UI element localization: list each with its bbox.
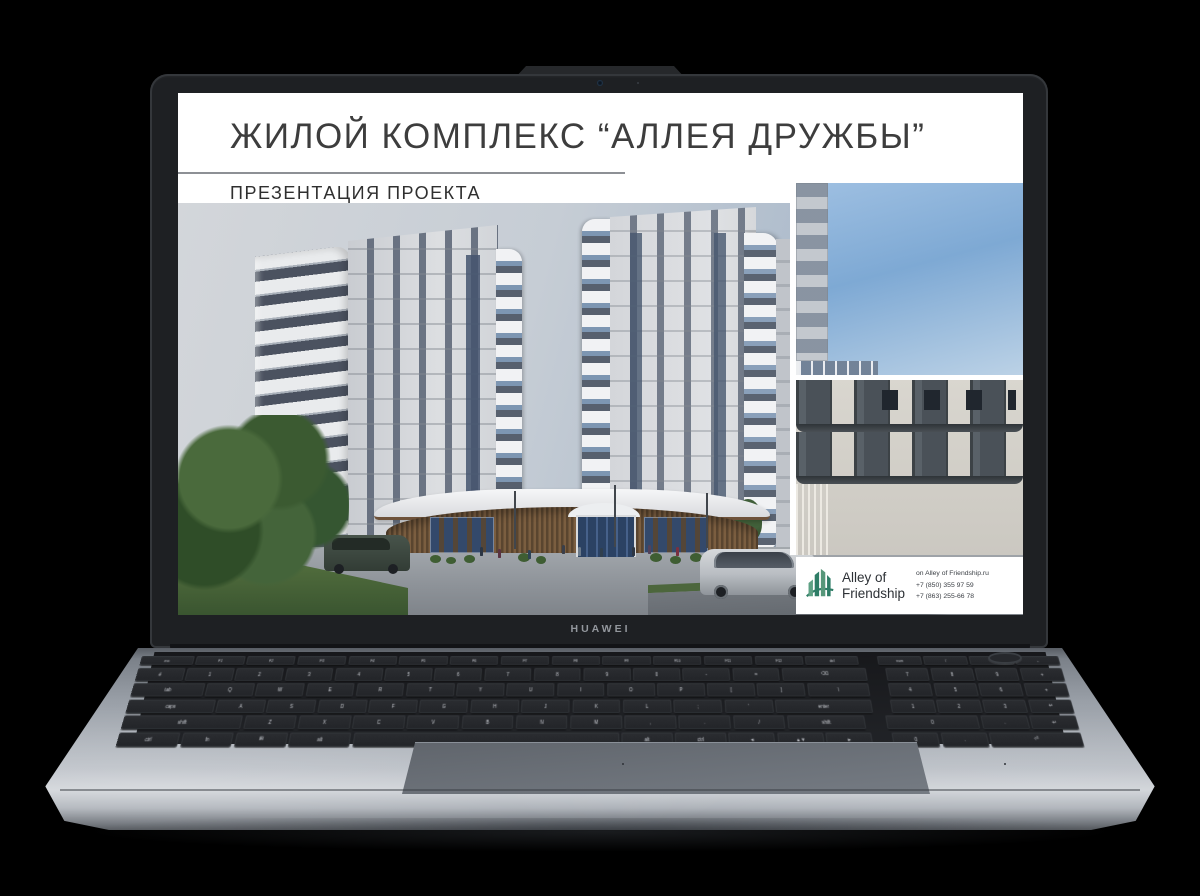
microphone-dot: [622, 763, 624, 765]
key-s: S: [266, 699, 317, 713]
key-f: F: [368, 699, 418, 713]
key-caps: caps: [125, 699, 215, 713]
key-1: 1: [185, 668, 235, 681]
entrance-door: [576, 515, 636, 557]
key-0: 0: [885, 715, 981, 729]
slide-title: ЖИЛОЙ КОМПЛЕКС “АЛЛЕЯ ДРУЖБЫ”: [230, 117, 925, 157]
pedestrian: [498, 549, 501, 558]
key-9: 9: [583, 668, 630, 681]
key-f10: F10: [653, 656, 702, 665]
keyboard-row: tabQWERTYUIOP[]\456+: [130, 683, 1070, 696]
wheel: [388, 564, 398, 574]
pedestrian: [528, 550, 531, 559]
street-lamp: [614, 485, 616, 547]
keyboard-gap: [868, 668, 884, 681]
alley-of-friendship-logo-icon: [805, 566, 835, 605]
facade-detail-photo: [790, 380, 1023, 555]
key-sym: +: [1023, 683, 1070, 696]
key-u: U: [506, 683, 554, 696]
key-sym: ⊞: [234, 732, 288, 746]
key-q: Q: [204, 683, 255, 696]
key-x: X: [297, 715, 351, 729]
contact-block: on Alley of Friendship.ru +7 (850) 355 9…: [916, 568, 1014, 603]
balcony-detail-photo: [790, 183, 1023, 380]
balcony-rail: [796, 424, 1023, 432]
logo-line2: Friendship: [842, 586, 905, 601]
balcony-rail: [796, 476, 1023, 484]
logo-card: Alley of Friendship on Alley of Friendsh…: [796, 557, 1023, 614]
key-tab: tab: [130, 683, 205, 696]
entrance-glazing: [430, 517, 494, 553]
key-w: W: [255, 683, 305, 696]
key-z: Z: [243, 715, 298, 729]
key-sym: =: [732, 668, 780, 681]
key-6: 6: [978, 683, 1024, 696]
large-tree: [178, 415, 349, 615]
key-ё: ё: [135, 668, 186, 681]
key-sym: ': [724, 699, 773, 713]
key-d: D: [317, 699, 367, 713]
key-sym: [: [707, 683, 756, 696]
key-3: 3: [982, 699, 1029, 713]
key-h: H: [470, 699, 519, 713]
key-l: L: [623, 699, 672, 713]
key-f12: F12: [754, 656, 803, 665]
key-f2: F2: [246, 656, 296, 665]
key-7: 7: [885, 668, 930, 681]
key-enter: enter: [775, 699, 873, 713]
key-sym: ↵: [1029, 715, 1079, 729]
keyboard-gap: [871, 683, 888, 696]
key-sym: .: [679, 715, 732, 729]
trackpad: [402, 742, 930, 794]
key-shift: shift: [787, 715, 866, 729]
key-sym: ,: [625, 715, 677, 729]
key-f3: F3: [297, 656, 347, 665]
key-sym: .: [980, 715, 1030, 729]
key-shift: shift: [121, 715, 243, 729]
key-f4: F4: [348, 656, 397, 665]
key-sym: +: [1019, 668, 1065, 681]
suv-window: [714, 552, 794, 568]
key-8: 8: [930, 668, 975, 681]
street-lamp: [706, 493, 708, 548]
bush: [536, 556, 546, 564]
window-row: [796, 432, 1023, 476]
keyboard-row: shiftZXCVBNM,./shift0.↵: [121, 715, 1080, 729]
bush: [650, 553, 662, 562]
key-4: 4: [888, 683, 933, 696]
key-4: 4: [334, 668, 383, 681]
pedestrian: [648, 545, 651, 554]
key-2: 2: [235, 668, 285, 681]
neighbor-building: [796, 361, 878, 380]
right-tower-accent-strip: [630, 233, 642, 533]
laptop-screen: ЖИЛОЙ КОМПЛЕКС “АЛЛЕЯ ДРУЖБЫ” ПРЕЗЕНТАЦИ…: [178, 93, 1023, 615]
logo-line1: Alley of: [842, 570, 905, 585]
key-sym: ]: [757, 683, 806, 696]
slide-subtitle: ПРЕЗЕНТАЦИЯ ПРОЕКТА: [230, 183, 481, 204]
cyclist: [676, 547, 679, 556]
key-c: C: [352, 715, 406, 729]
pedestrian: [578, 547, 581, 556]
right-tower-accent-strip: [714, 233, 726, 533]
front-edge-seam: [60, 789, 1140, 791]
key-sym: /: [923, 656, 968, 665]
laptop-product-shot: ЖИЛОЙ КОМПЛЕКС “АЛЛЕЯ ДРУЖБЫ” ПРЕЗЕНТАЦИ…: [0, 0, 1200, 896]
key-2: 2: [936, 699, 982, 713]
huawei-wordmark: HUAWEI: [178, 623, 1023, 635]
key-sym: ⌫: [781, 668, 868, 681]
key-p: P: [657, 683, 705, 696]
keyboard-gap: [873, 699, 890, 713]
bush: [464, 555, 475, 563]
key-sym: ⏎: [989, 732, 1085, 746]
key-t: T: [406, 683, 455, 696]
key-m: M: [570, 715, 622, 729]
base-windows: [856, 390, 1016, 410]
key-fn: fn: [180, 732, 234, 746]
key-del: del: [805, 656, 859, 665]
key-sym: \: [807, 683, 871, 696]
keyboard: escF1F2F3F4F5F6F7F8F9F10F11F12delnum/*-ё…: [113, 656, 1087, 754]
key-f9: F9: [602, 656, 650, 665]
key-f11: F11: [704, 656, 753, 665]
keyboard-gap: [867, 715, 885, 729]
key-alt: alt: [288, 732, 352, 746]
pedestrian: [600, 548, 603, 557]
key-f1: F1: [195, 656, 245, 665]
key-y: Y: [456, 683, 505, 696]
key-o: O: [607, 683, 655, 696]
street-lamp: [514, 491, 516, 549]
key-j: J: [521, 699, 570, 713]
key-0: 0: [633, 668, 681, 681]
key-sym: /: [733, 715, 786, 729]
keyboard-row: capsASDFGHJKL;'enter123↵: [125, 699, 1074, 713]
key-esc: esc: [139, 656, 194, 665]
key-sym: ↵: [1027, 699, 1074, 713]
keyboard-gap: [860, 656, 876, 665]
key-k: K: [572, 699, 620, 713]
key-g: G: [419, 699, 468, 713]
key-n: N: [516, 715, 568, 729]
website-line: on Alley of Friendship.ru: [916, 568, 1014, 580]
phone-line-2: +7 (863) 255-66 78: [916, 591, 1014, 603]
keyboard-row: escF1F2F3F4F5F6F7F8F9F10F11F12delnum/*-: [139, 656, 1060, 665]
key-f5: F5: [399, 656, 448, 665]
background-building: [796, 183, 828, 361]
bush: [430, 555, 441, 563]
key-7: 7: [484, 668, 532, 681]
logo-wordmark: Alley of Friendship: [842, 570, 905, 600]
bush: [670, 556, 681, 564]
key-f7: F7: [501, 656, 550, 665]
key-5: 5: [384, 668, 433, 681]
key-f8: F8: [551, 656, 599, 665]
white-slat-screen: [796, 484, 830, 555]
key-5: 5: [933, 683, 979, 696]
power-button: [988, 652, 1022, 664]
key-a: A: [215, 699, 266, 713]
keyboard-row: ё1234567890-=⌫789+: [135, 668, 1065, 681]
microphone-dot: [1004, 763, 1006, 765]
key-num: num: [877, 656, 922, 665]
webcam-icon: [597, 80, 603, 86]
key-sym: .: [940, 732, 989, 746]
key-1: 1: [890, 699, 936, 713]
title-underline: [178, 172, 625, 174]
key-9: 9: [974, 668, 1020, 681]
pedestrian: [562, 545, 565, 554]
phone-line-1: +7 (850) 355 97 59: [916, 580, 1014, 592]
pedestrian: [632, 547, 635, 556]
key-i: I: [557, 683, 605, 696]
key-v: V: [406, 715, 459, 729]
key-6: 6: [434, 668, 482, 681]
key-ctrl: ctrl: [116, 732, 181, 746]
key-e: E: [305, 683, 355, 696]
base-shadow: [80, 818, 1120, 852]
key-r: R: [355, 683, 404, 696]
key-3: 3: [284, 668, 333, 681]
key-f6: F6: [450, 656, 499, 665]
wheel: [714, 585, 728, 599]
ambient-sensor-dot: [637, 82, 639, 84]
pedestrian: [480, 547, 483, 556]
key-sym: -: [682, 668, 730, 681]
bush: [446, 557, 456, 564]
key-sym: ;: [673, 699, 722, 713]
key-8: 8: [534, 668, 581, 681]
key-b: B: [461, 715, 514, 729]
